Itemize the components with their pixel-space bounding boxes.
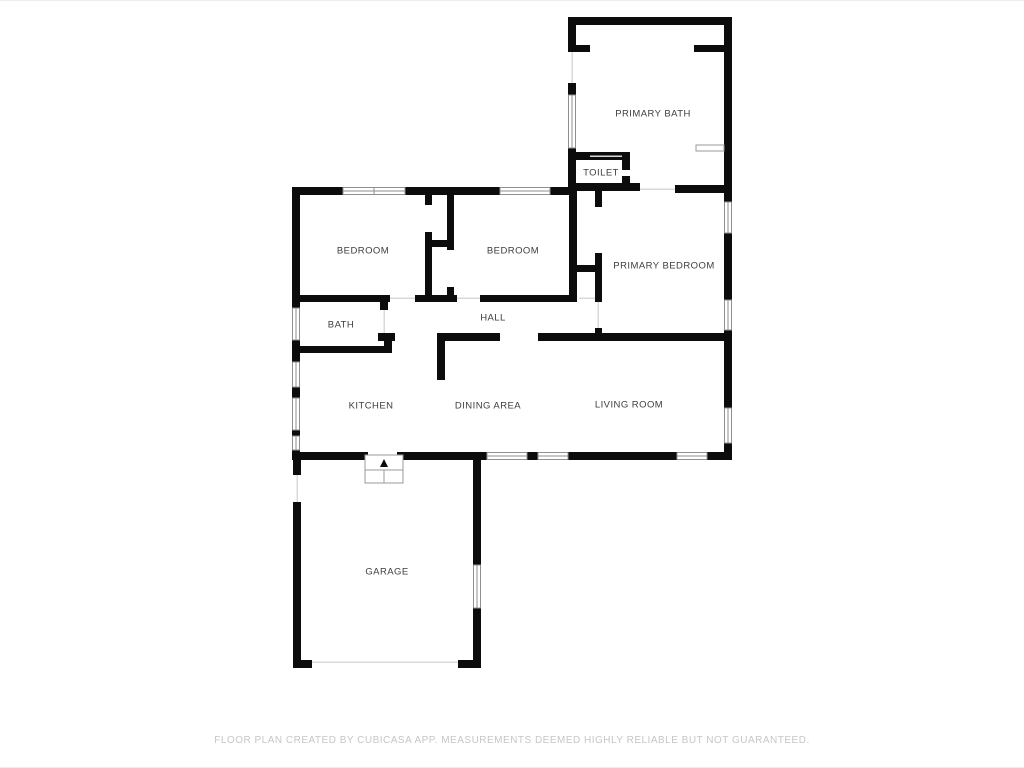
room-label-bedroom-1: BEDROOM (337, 246, 389, 257)
room-label-dining-area: DINING AREA (455, 401, 521, 412)
window-icon (474, 565, 481, 608)
room-label-toilet: TOILET (583, 168, 619, 179)
room-label-bedroom-2: BEDROOM (487, 246, 539, 257)
window-icon (293, 362, 300, 387)
room-label-primary-bedroom: PRIMARY BEDROOM (613, 261, 714, 272)
window-icon (725, 408, 732, 443)
room-label-kitchen: KITCHEN (349, 401, 394, 412)
floor-plan-drawing (0, 0, 1024, 768)
window-icon (725, 202, 732, 233)
footer-disclaimer: FLOOR PLAN CREATED BY CUBICASA APP. MEAS… (0, 735, 1024, 746)
window-icon (293, 398, 300, 430)
window-icon (500, 188, 550, 195)
window-icon (487, 453, 527, 460)
room-label-hall: HALL (480, 313, 506, 324)
window-icon (293, 308, 300, 340)
bath-fixture-icon (696, 145, 724, 151)
window-icon (725, 300, 732, 330)
window-icon (293, 436, 300, 450)
room-label-bath: BATH (328, 320, 354, 331)
stairs-icon (365, 455, 403, 483)
room-label-primary-bath: PRIMARY BATH (615, 109, 691, 120)
window-icon (343, 187, 405, 195)
door-openings (297, 52, 675, 662)
window-icon (538, 453, 568, 460)
window-icon (569, 95, 576, 148)
floor-plan-page: PRIMARY BATH TOILET BEDROOM BEDROOM PRIM… (0, 0, 1024, 768)
window-icon (677, 453, 707, 460)
room-label-garage: GARAGE (365, 567, 408, 578)
room-label-living-room: LIVING ROOM (595, 400, 663, 411)
